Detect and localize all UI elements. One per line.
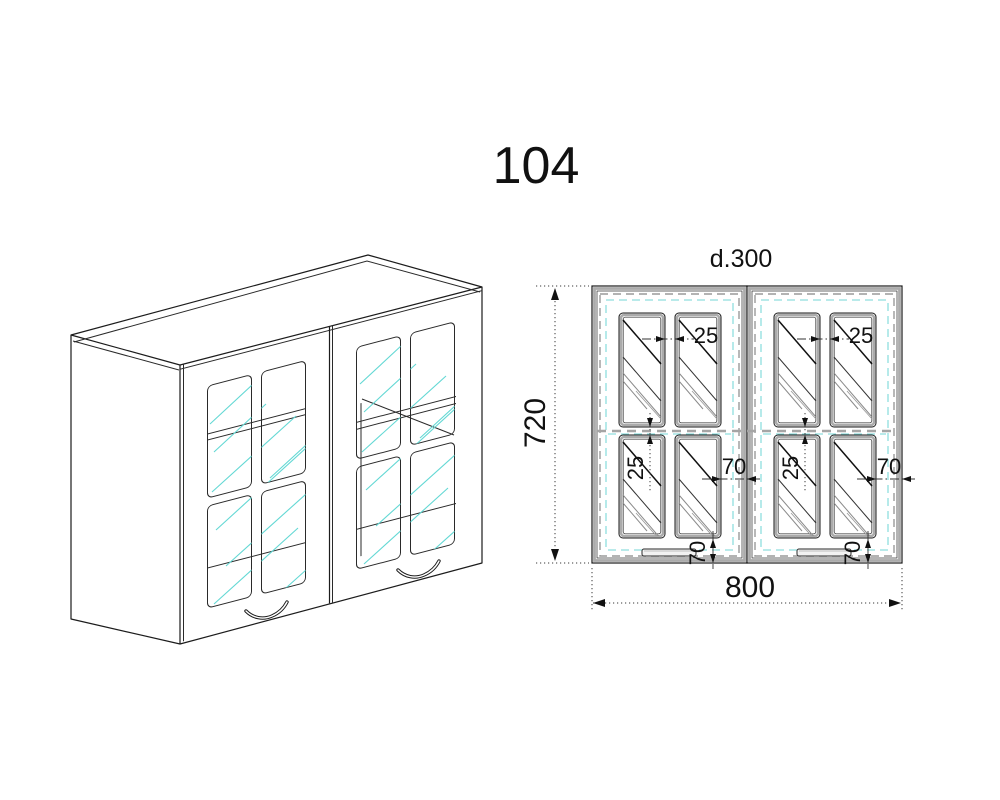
dim-25-top-left-door: 25 bbox=[694, 323, 718, 348]
dim-25-mid-left-door: 25 bbox=[623, 456, 648, 480]
dim-70-bottom-right-door: 70 bbox=[840, 541, 865, 565]
isometric-view bbox=[71, 255, 482, 644]
dim-height-720: 720 bbox=[519, 398, 552, 448]
dim-25-top-right-door: 25 bbox=[849, 323, 873, 348]
elevation-right-door bbox=[747, 286, 902, 563]
elevation-left-door bbox=[592, 286, 747, 563]
iso-right-door-handle bbox=[398, 561, 439, 577]
dim-70-side-left-door: 70 bbox=[722, 454, 746, 479]
dim-70-side-right-door: 70 bbox=[877, 454, 901, 479]
depth-label: d.300 bbox=[710, 245, 773, 273]
dim-width-800: 800 bbox=[725, 571, 775, 604]
iso-right-glass-reflections bbox=[360, 345, 456, 582]
cabinet-front-face bbox=[180, 287, 482, 643]
dim-25-mid-right-door: 25 bbox=[778, 456, 803, 480]
technical-drawing-page: 104 bbox=[0, 0, 1000, 800]
iso-left-door-glass bbox=[208, 361, 306, 608]
drawing-title: 104 bbox=[493, 137, 580, 195]
front-elevation-view: d.300 720 800 25 25 25 25 70 70 70 70 bbox=[519, 245, 915, 612]
iso-right-door-glass bbox=[357, 322, 455, 569]
dim-70-bottom-left-door: 70 bbox=[685, 541, 710, 565]
iso-left-door-handle bbox=[246, 602, 287, 618]
cabinet-drawing-svg: 104 bbox=[0, 0, 1000, 800]
